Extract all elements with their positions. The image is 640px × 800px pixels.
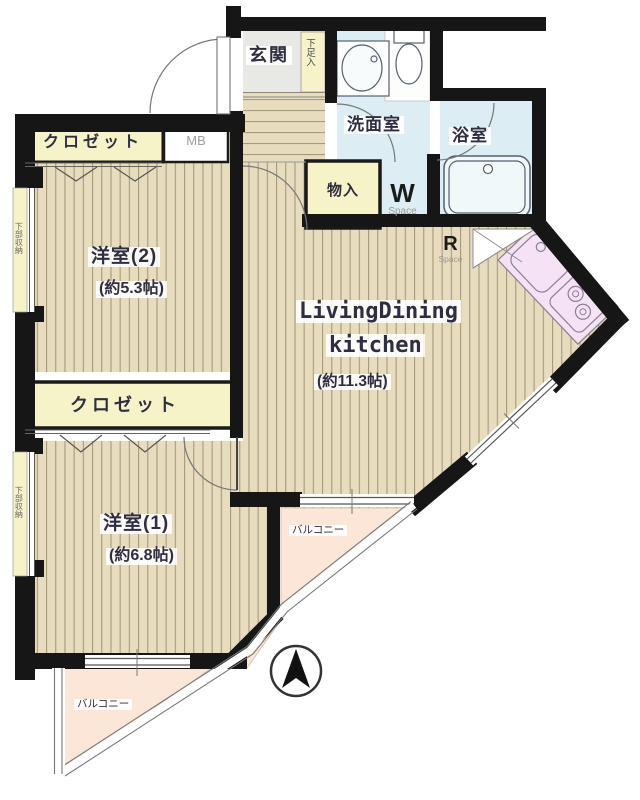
fridge-space-letter: R xyxy=(443,233,457,256)
shoe-storage-label: 下足入 xyxy=(304,38,314,67)
washbasin-icon xyxy=(342,45,382,91)
ldk-size-label: (約11.3帖) xyxy=(314,374,391,390)
entrance-label: 玄関 xyxy=(246,46,292,65)
bedroom2-size-label: (約5.3帖) xyxy=(96,281,167,298)
fridge-space: R Space xyxy=(428,228,473,268)
storage-label: 物入 xyxy=(306,183,380,199)
north-arrow-icon xyxy=(271,646,321,696)
faucet-icon xyxy=(371,56,377,62)
bathroom-label: 浴室 xyxy=(449,127,491,145)
under-storage-bedroom2-label: 下部収納 xyxy=(14,222,22,254)
ldk-south-window xyxy=(300,494,414,507)
bedroom2-label: 洋室(2) xyxy=(88,247,160,267)
washer-space-letter: W xyxy=(390,178,415,209)
toilet-icon xyxy=(396,44,422,84)
ldk-label-line2: kitchen xyxy=(326,334,425,357)
under-storage-bedroom1-label: 下部収納 xyxy=(14,486,22,518)
toilet-tank-icon xyxy=(394,30,424,43)
ldk-label-line1: LivingDining xyxy=(296,300,461,323)
washer-space: W Space xyxy=(377,167,428,227)
entrance-door-leaf xyxy=(217,37,230,114)
entrance-door-swing xyxy=(150,39,224,113)
fridge-space-sub: Space xyxy=(438,254,462,264)
washer-space-sub: Space xyxy=(388,206,416,217)
tub-drain-icon xyxy=(484,165,493,174)
bedroom1-size-label: (約6.8帖) xyxy=(106,548,177,565)
closet-top-label: クロゼット xyxy=(26,135,160,152)
floor-plan: クロゼット MB 玄関 下足入 洗面室 浴室 物入 W Space R Spac… xyxy=(0,0,640,800)
balcony-bedroom1-label: バルコニー xyxy=(74,699,132,710)
washroom-label: 洗面室 xyxy=(344,116,404,134)
meter-box-label: MB xyxy=(164,134,228,148)
hallway-floor xyxy=(243,90,325,162)
closet-mid-label: クロゼット xyxy=(18,382,232,428)
balcony-ldk-label: バルコニー xyxy=(289,525,347,536)
bedroom1-label: 洋室(1) xyxy=(100,514,172,534)
